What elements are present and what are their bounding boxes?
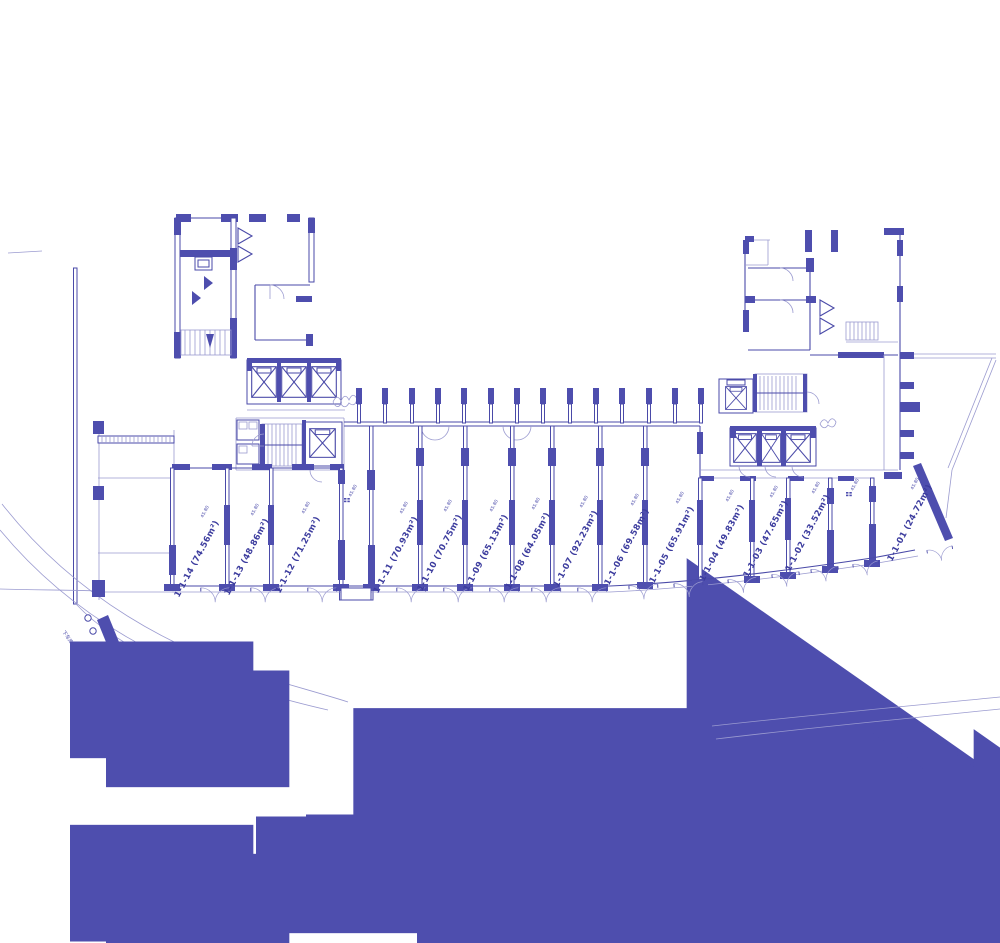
- entry-door-icon: [308, 588, 337, 602]
- elevator-bank-west: [247, 358, 357, 410]
- door-leaf-icon: [820, 300, 834, 334]
- svg-text:45.80: 45.80: [674, 491, 685, 505]
- svg-text:45.80: 45.80: [530, 497, 541, 511]
- stair-treads: [753, 374, 807, 412]
- floor-plan-canvas: 下车库: [0, 0, 1000, 943]
- svg-text:45.80: 45.80: [300, 501, 311, 515]
- svg-text:45.80: 45.80: [629, 493, 640, 507]
- stair-treads: [260, 424, 302, 466]
- floor-plan-page: 下车库: [0, 0, 1000, 943]
- svg-text:45.80: 45.80: [442, 499, 453, 513]
- svg-text:1-1-07 (92.23m²): 1-1-07 (92.23m²): [552, 509, 601, 589]
- svg-text:45.80: 45.80: [347, 484, 358, 498]
- svg-text:45.80: 45.80: [578, 495, 589, 509]
- block-northeast: [719, 228, 920, 477]
- revision-cloud-icon: [820, 419, 836, 428]
- svg-text:1-1-10 (70.75m²): 1-1-10 (70.75m²): [416, 513, 465, 593]
- door-mark-icon: [204, 276, 213, 290]
- entry-door-icon: [927, 546, 954, 563]
- svg-text:45.80: 45.80: [398, 501, 409, 515]
- stair-treads: [846, 322, 898, 342]
- svg-text:1-1-14 (74.56m²): 1-1-14 (74.56m²): [173, 519, 222, 599]
- stair-hatch: [181, 330, 231, 355]
- lobby-entrance: [341, 588, 371, 600]
- svg-text:1-1-12 (71.25m²): 1-1-12 (71.25m²): [274, 515, 323, 595]
- svg-text:45.80: 45.80: [768, 485, 779, 499]
- svg-text:1-1-11 (70.93m²): 1-1-11 (70.93m²): [372, 515, 421, 595]
- door-mark-icon: [192, 291, 201, 305]
- svg-text:45.80: 45.80: [909, 477, 920, 491]
- door-leaf-icon: [238, 228, 252, 262]
- svg-text:1-1-02 (33.52m²): 1-1-02 (33.52m²): [784, 493, 833, 573]
- svg-text:45.80: 45.80: [249, 503, 260, 517]
- block-northwest: [174, 214, 315, 358]
- svg-text:45.80: 45.80: [199, 505, 210, 519]
- stair-row-west: [236, 418, 344, 482]
- svg-text:1-1-04 (49.83m²): 1-1-04 (49.83m²): [698, 503, 747, 583]
- svg-text:45.80: 45.80: [724, 489, 735, 503]
- svg-text:1-1-09 (65.13m²): 1-1-09 (65.13m²): [462, 513, 511, 593]
- svg-text:45.80: 45.80: [810, 481, 821, 495]
- elevator-bank-east: [730, 426, 816, 477]
- svg-text:45.80: 45.80: [488, 499, 499, 513]
